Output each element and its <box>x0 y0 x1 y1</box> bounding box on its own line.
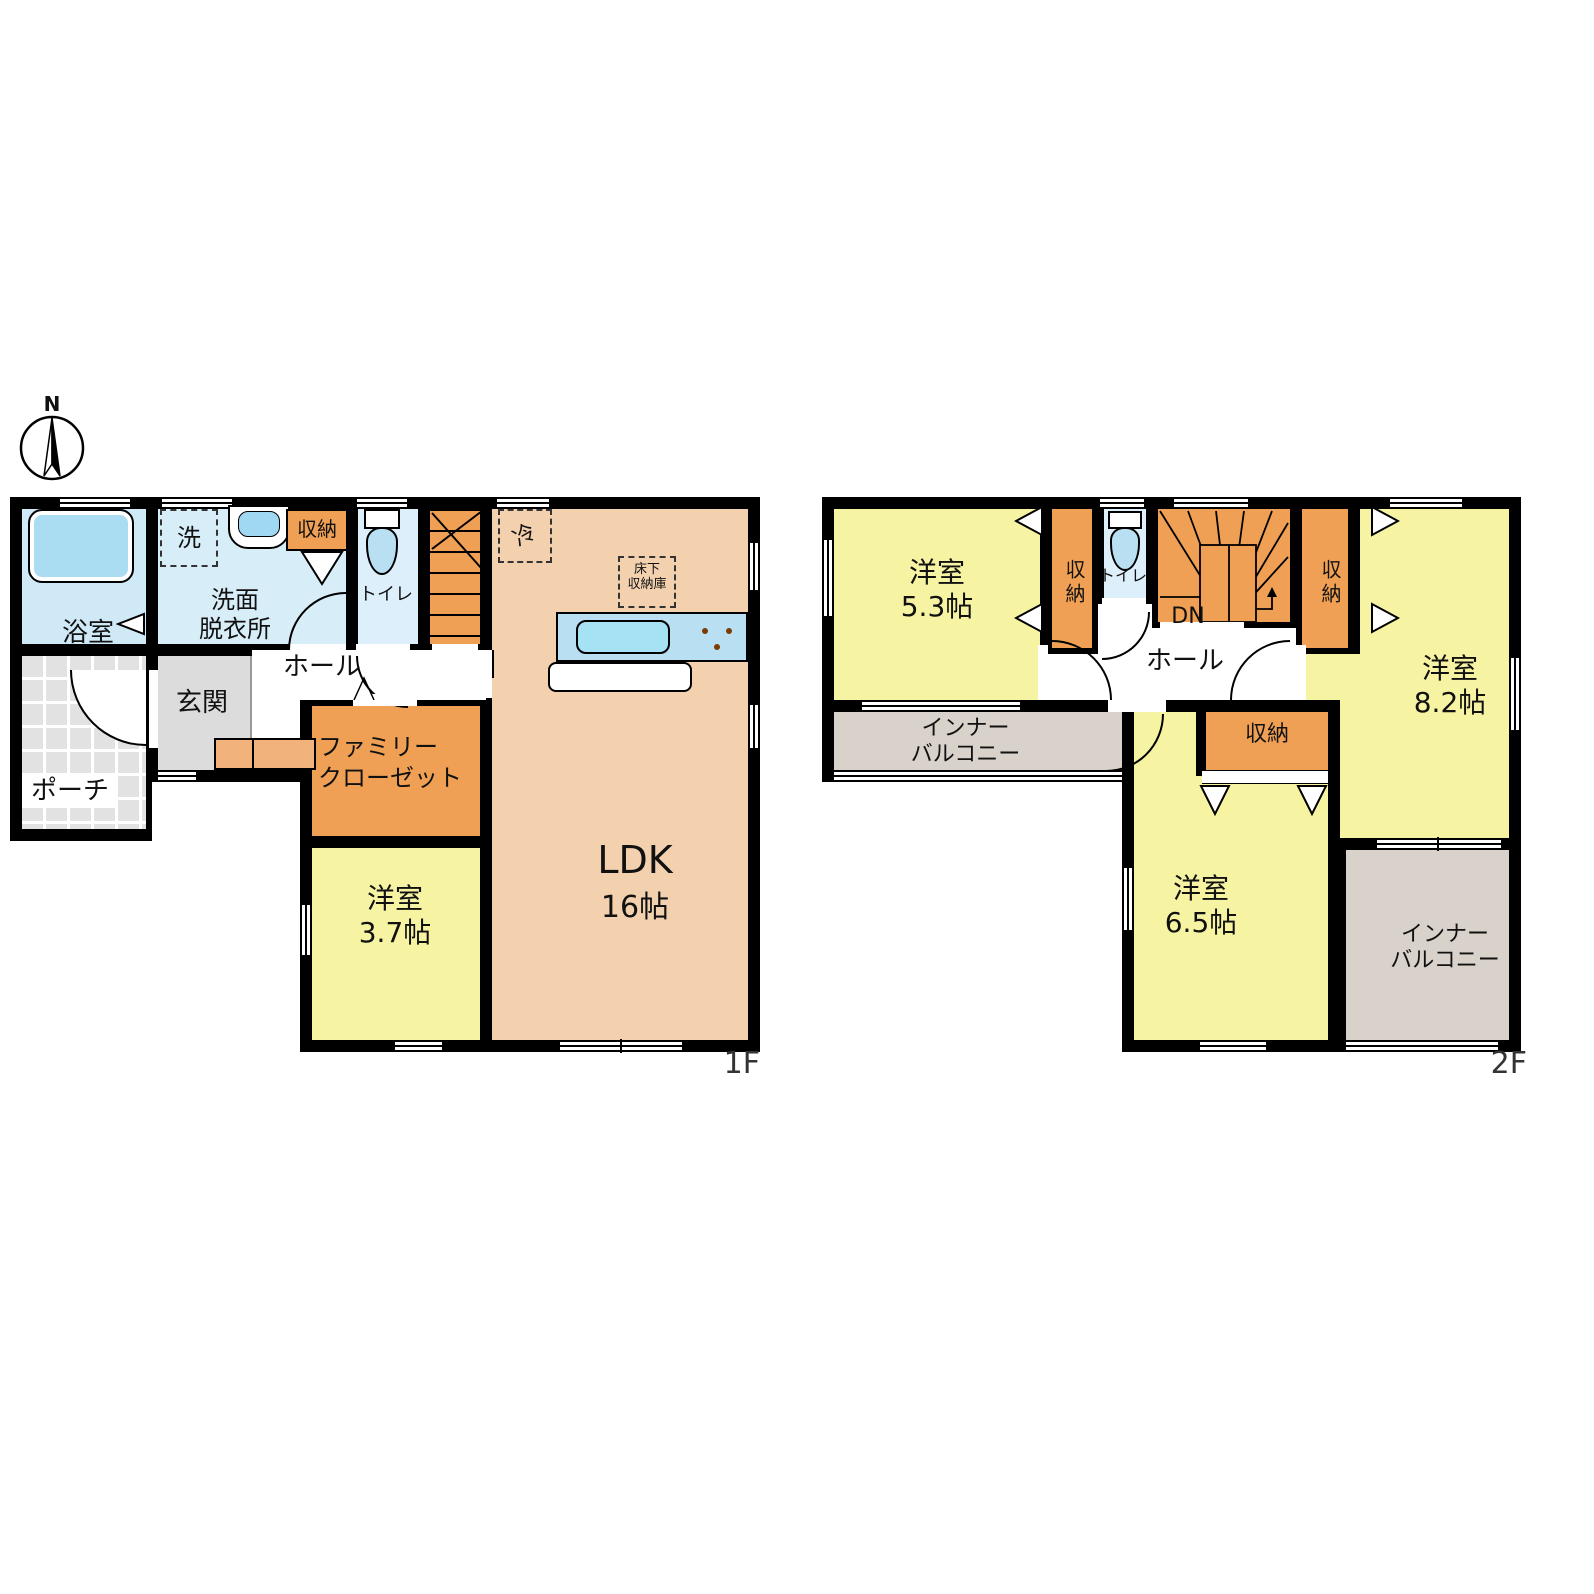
label-floor-2f: 2F <box>1455 1046 1527 1080</box>
label-entrance: 玄関 <box>160 688 244 720</box>
wall-strip-hall-2f <box>1046 700 1334 712</box>
window <box>162 497 232 509</box>
window <box>822 540 834 616</box>
closet-front-band <box>1202 770 1328 784</box>
stairs-1f-break-lines <box>424 497 486 652</box>
window <box>1390 497 1462 509</box>
underfloor-storage-label: 床下収納庫 <box>620 562 674 602</box>
label-inner-balcony-br: インナーバルコニー <box>1365 922 1525 974</box>
door-leaf-entrance <box>146 670 149 748</box>
label-toilet-1f: トイレ <box>348 584 424 606</box>
stove-burner <box>714 644 720 650</box>
compass-icon <box>16 396 88 486</box>
bathtub <box>28 509 134 583</box>
door-opening <box>1102 598 1146 606</box>
label-inner-balcony-tl: インナーバルコニー <box>888 716 1043 768</box>
label-dn: DN <box>1158 604 1218 630</box>
window <box>1174 497 1248 509</box>
window <box>300 905 312 955</box>
window <box>748 705 760 748</box>
window <box>1100 497 1144 509</box>
fold-door-arrow-icon <box>300 550 344 588</box>
door-opening <box>1108 700 1166 712</box>
label-ldk: LDK16帖 <box>555 838 715 922</box>
label-storage-2f-left: 収納 <box>1056 540 1086 626</box>
balcony-rail <box>834 770 1122 782</box>
wall-strip-entrance <box>252 770 312 782</box>
window <box>748 543 760 590</box>
fold-door-arrow-icon <box>1199 784 1231 816</box>
stove-burner <box>702 628 708 634</box>
kitchen-sink <box>576 620 670 654</box>
door-opening <box>432 644 478 656</box>
sliding-door-panel <box>492 650 494 678</box>
label-storage-2f-right: 収納 <box>1312 540 1342 626</box>
label-toilet-2f: トイレ <box>1094 566 1152 586</box>
sliding-door-opening-ldk <box>480 650 492 698</box>
window <box>862 700 1020 712</box>
entrance-step-divider <box>252 740 254 768</box>
door-opening <box>1292 645 1306 700</box>
washer-label: 洗 <box>163 511 215 565</box>
floor-plan-canvas: N <box>0 0 1594 1594</box>
label-storage-2f-hall: 収納 <box>1222 722 1312 750</box>
storage-label: 収納 <box>286 509 348 551</box>
window <box>395 1040 442 1052</box>
label-bedroom-53: 洋室5.3帖 <box>862 556 1012 624</box>
label-bedroom-65: 洋室6.5帖 <box>1126 872 1276 940</box>
label-hall-1f: ホール <box>262 652 382 684</box>
window-tick <box>1437 837 1439 851</box>
window <box>1200 1040 1266 1052</box>
fold-door-arrow-icon <box>1296 784 1328 816</box>
window-tick <box>620 1039 622 1053</box>
label-bedroom-37: 洋室3.7帖 <box>322 882 468 950</box>
window <box>1377 838 1501 850</box>
stove-burner <box>726 628 732 634</box>
label-bedroom-82: 洋室8.2帖 <box>1375 652 1525 720</box>
fold-door-arrow-icon <box>1014 602 1044 634</box>
label-porch: ポーチ <box>22 774 118 808</box>
washroom-sink-basin <box>238 511 280 537</box>
door-opening <box>1038 645 1048 700</box>
label-hall-2f: ホール <box>1118 646 1252 678</box>
window <box>60 497 130 509</box>
fold-door-arrow-icon <box>1014 505 1044 537</box>
fold-door-arrow-icon <box>1370 602 1400 634</box>
fold-door-arrow-icon <box>1370 505 1400 537</box>
kitchen-ledge <box>548 662 692 692</box>
entrance-step <box>214 738 316 770</box>
label-bath: 浴室 <box>36 618 140 648</box>
toilet-tank-1f <box>364 509 400 529</box>
label-floor-1f: 1F <box>688 1046 760 1080</box>
window <box>158 770 196 782</box>
window <box>357 497 407 509</box>
label-washroom: 洗面脱衣所 <box>175 586 295 644</box>
label-family-closet: ファミリークローゼット <box>308 732 480 794</box>
